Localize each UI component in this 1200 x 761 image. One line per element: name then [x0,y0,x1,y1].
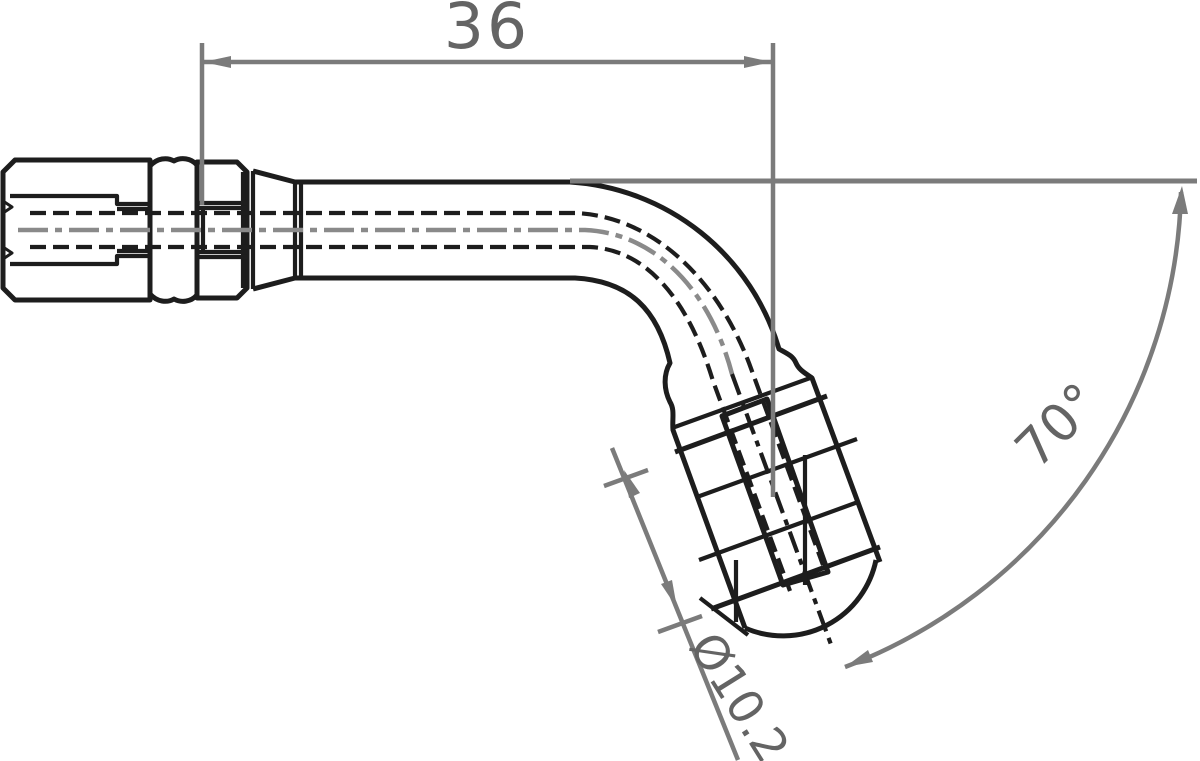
dimension-angle: 70° [570,181,1197,667]
banjo-mid-line-2 [699,502,858,560]
angle-arrow-bottom [845,650,873,667]
dim-label-length: 36 [444,0,530,63]
centerline-elbow-axis [732,374,833,650]
socket-bore-step-top [10,196,152,204]
dim-label-diameter: Ø10.2 [678,623,800,761]
angle-arrow-top [1172,186,1188,214]
dia-arrow-bottom [661,580,677,608]
banjo-mid-line-1 [697,439,857,497]
arrow-left [203,56,231,68]
arrow-right [744,56,772,68]
fitting-elbow-drawing: 36 70° Ø10.2 [0,0,1200,761]
banjo-top-edge [672,377,813,428]
technical-drawing-canvas: 36 70° Ø10.2 [0,0,1200,761]
socket-bore-step-bottom [10,256,152,264]
bulge-top [150,159,197,166]
bulge-bottom [150,294,197,301]
tube-outer-edge [295,182,880,562]
